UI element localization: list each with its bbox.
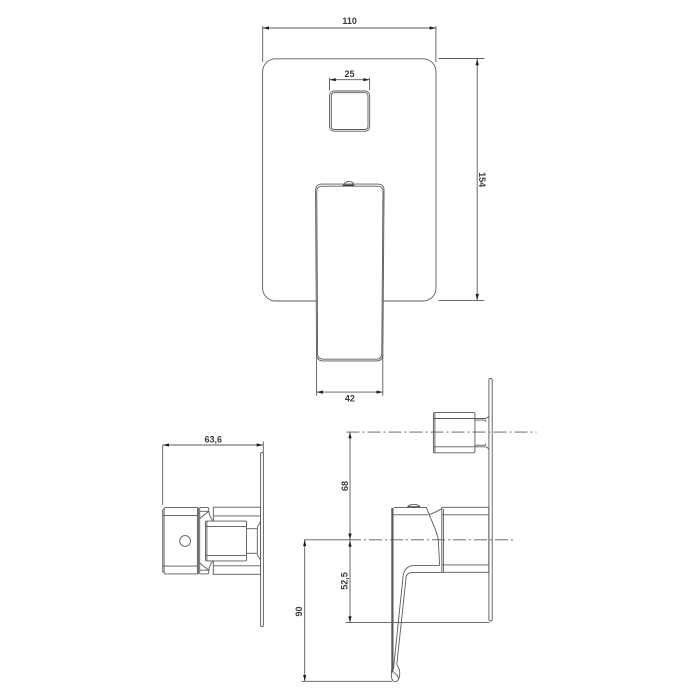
svg-text:63,6: 63,6 xyxy=(205,435,223,445)
svg-text:90: 90 xyxy=(294,606,304,616)
svg-text:68: 68 xyxy=(340,481,350,491)
svg-text:110: 110 xyxy=(342,16,357,26)
svg-text:25: 25 xyxy=(344,69,354,79)
svg-text:52,5: 52,5 xyxy=(339,572,349,590)
svg-text:42: 42 xyxy=(345,394,355,404)
svg-text:154: 154 xyxy=(477,172,487,187)
